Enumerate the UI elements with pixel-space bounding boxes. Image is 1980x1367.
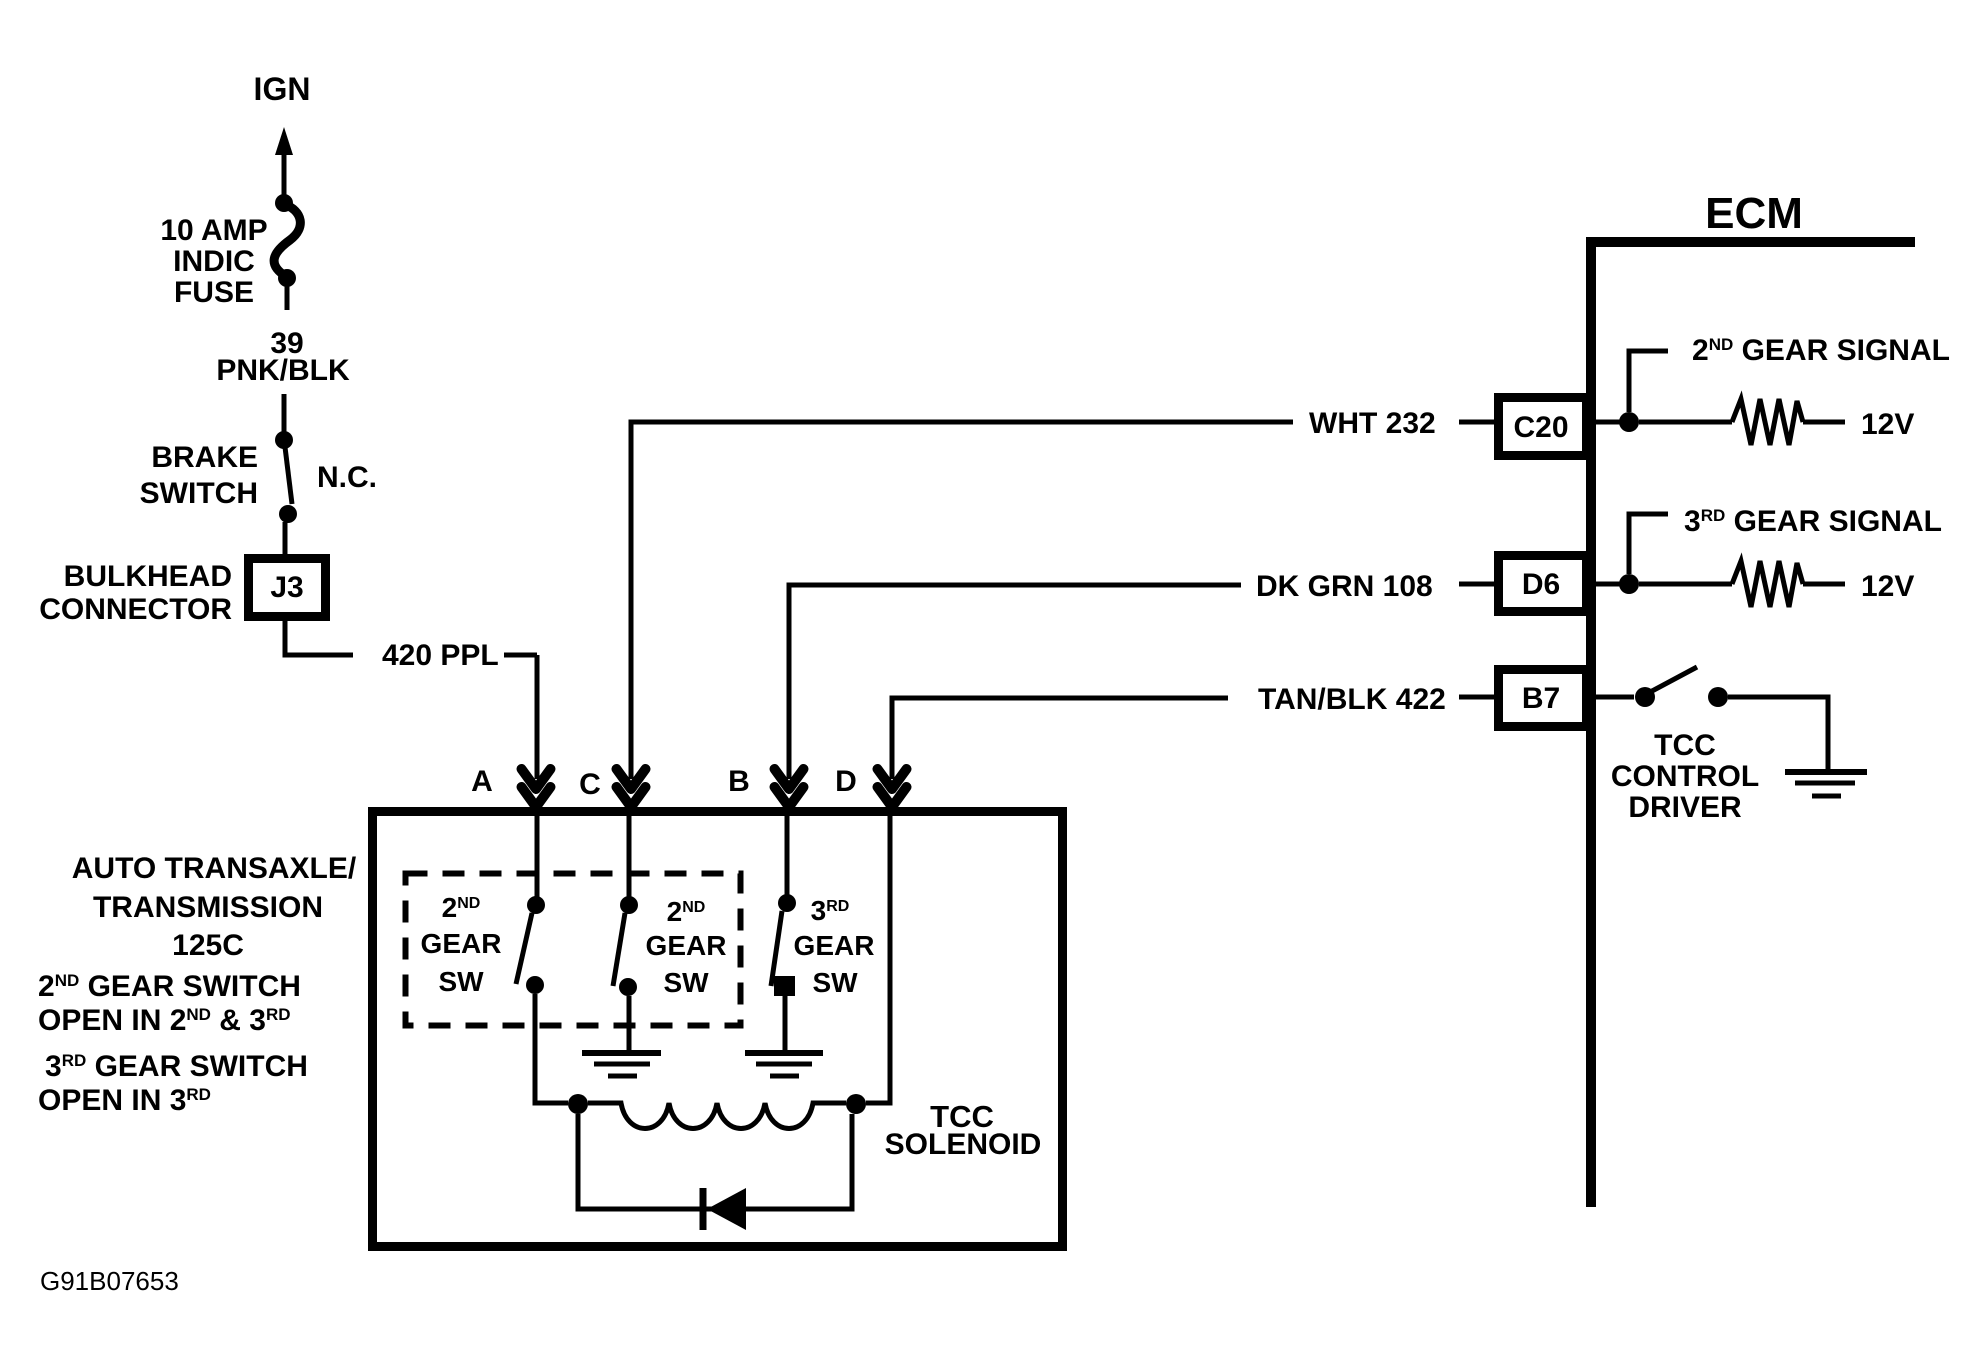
svg-text:D6: D6 <box>1522 568 1560 601</box>
svg-text:SW: SW <box>438 966 484 997</box>
svg-text:DRIVER: DRIVER <box>1628 791 1742 824</box>
svg-text:CONNECTOR: CONNECTOR <box>39 593 232 626</box>
svg-text:12V: 12V <box>1861 408 1914 441</box>
svg-text:OPEN IN 3RD: OPEN IN 3RD <box>38 1084 211 1117</box>
svg-text:10 AMP: 10 AMP <box>160 214 267 247</box>
svg-text:A: A <box>471 765 493 798</box>
svg-text:WHT 232: WHT 232 <box>1309 407 1436 440</box>
svg-text:CONTROL: CONTROL <box>1611 760 1759 793</box>
svg-text:BRAKE: BRAKE <box>151 441 258 474</box>
svg-text:GEAR: GEAR <box>794 930 875 961</box>
svg-text:TRANSMISSION: TRANSMISSION <box>93 891 323 924</box>
svg-text:GEAR: GEAR <box>421 928 502 959</box>
svg-text:ECM: ECM <box>1705 189 1803 238</box>
svg-text:SW: SW <box>812 967 858 998</box>
svg-text:SWITCH: SWITCH <box>140 477 258 510</box>
svg-text:C20: C20 <box>1513 411 1568 444</box>
svg-text:INDIC: INDIC <box>173 245 255 278</box>
svg-text:G91B07653: G91B07653 <box>40 1266 179 1296</box>
svg-text:D: D <box>835 765 857 798</box>
svg-text:DK GRN 108: DK GRN 108 <box>1256 570 1433 603</box>
svg-text:TCC: TCC <box>1654 729 1716 762</box>
svg-text:SW: SW <box>663 967 709 998</box>
svg-text:IGN: IGN <box>254 71 311 107</box>
svg-text:TAN/BLK 422: TAN/BLK 422 <box>1258 683 1446 716</box>
svg-text:420 PPL: 420 PPL <box>382 639 499 672</box>
svg-text:FUSE: FUSE <box>174 276 254 309</box>
svg-text:C: C <box>579 768 601 801</box>
svg-text:J3: J3 <box>270 571 303 604</box>
svg-text:GEAR: GEAR <box>646 930 727 961</box>
svg-text:OPEN IN 2ND & 3RD: OPEN IN 2ND & 3RD <box>38 1004 291 1037</box>
svg-text:B7: B7 <box>1522 682 1560 715</box>
svg-text:N.C.: N.C. <box>317 461 377 494</box>
svg-text:AUTO TRANSAXLE/: AUTO TRANSAXLE/ <box>72 852 357 885</box>
svg-text:12V: 12V <box>1861 570 1914 603</box>
svg-text:125C: 125C <box>172 929 244 962</box>
svg-text:PNK/BLK: PNK/BLK <box>216 354 350 387</box>
svg-text:SOLENOID: SOLENOID <box>885 1128 1042 1161</box>
svg-text:B: B <box>728 765 750 798</box>
svg-text:BULKHEAD: BULKHEAD <box>64 560 232 593</box>
